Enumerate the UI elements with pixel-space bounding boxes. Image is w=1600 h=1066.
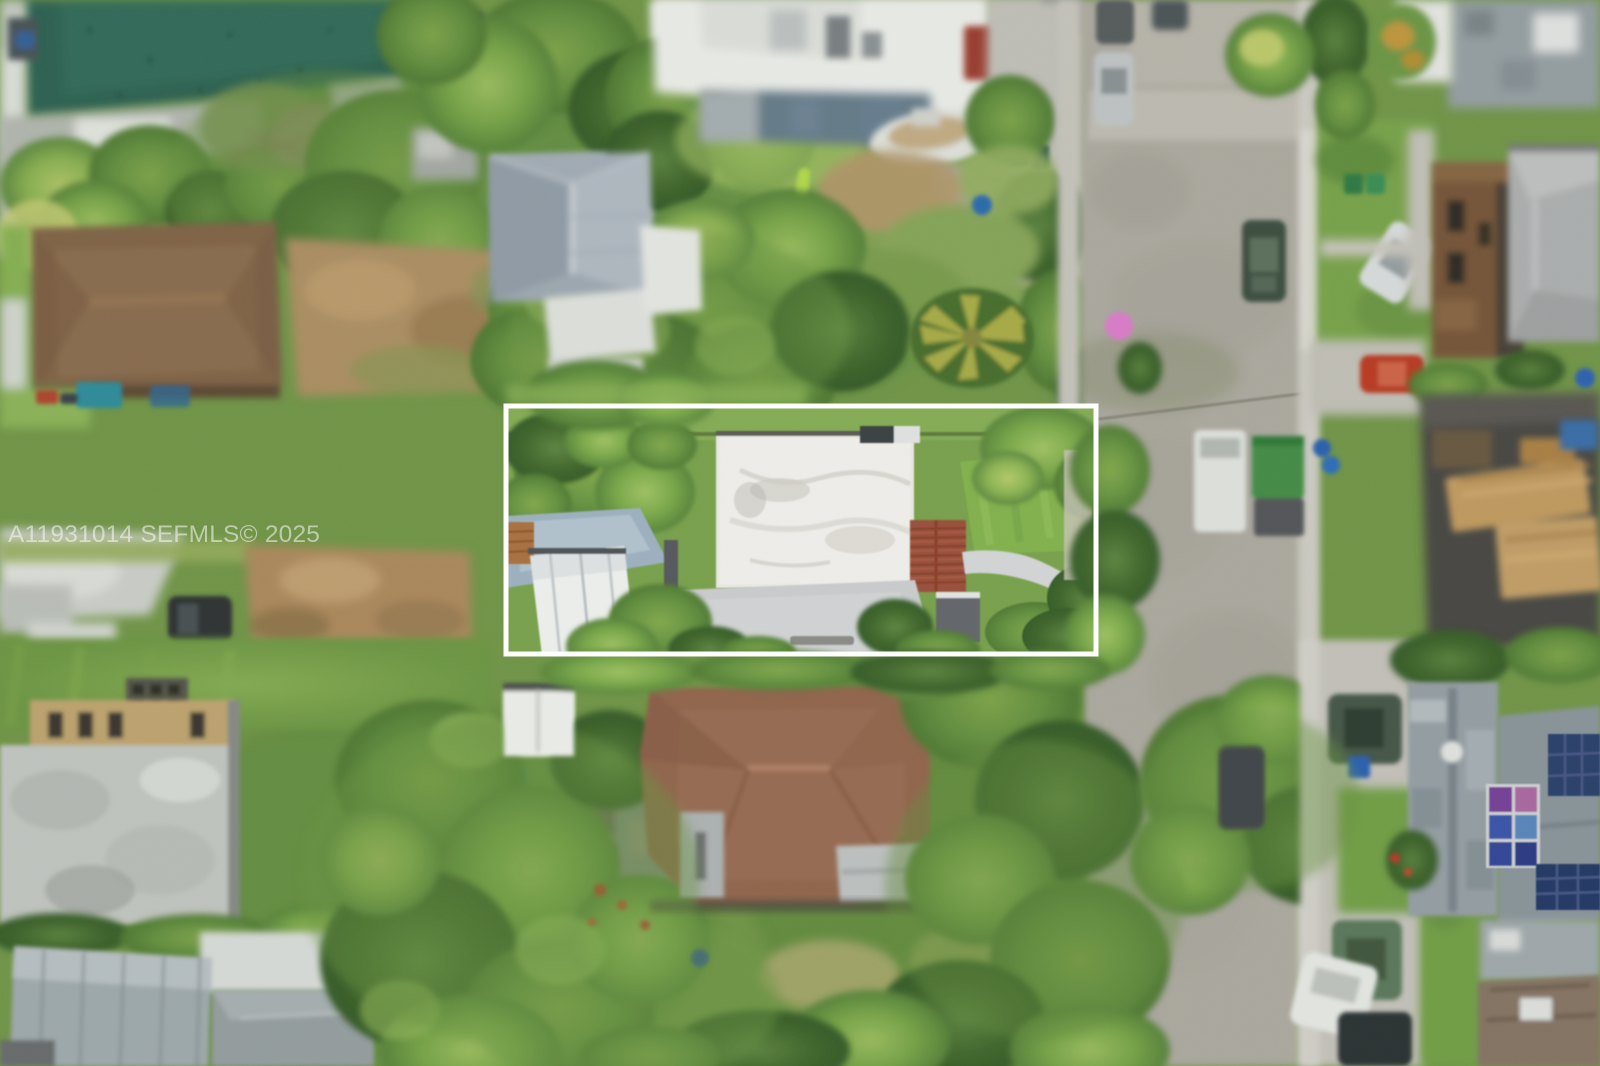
svg-text:A11931014 SEFMLS© 2025: A11931014 SEFMLS© 2025 [8,521,320,548]
